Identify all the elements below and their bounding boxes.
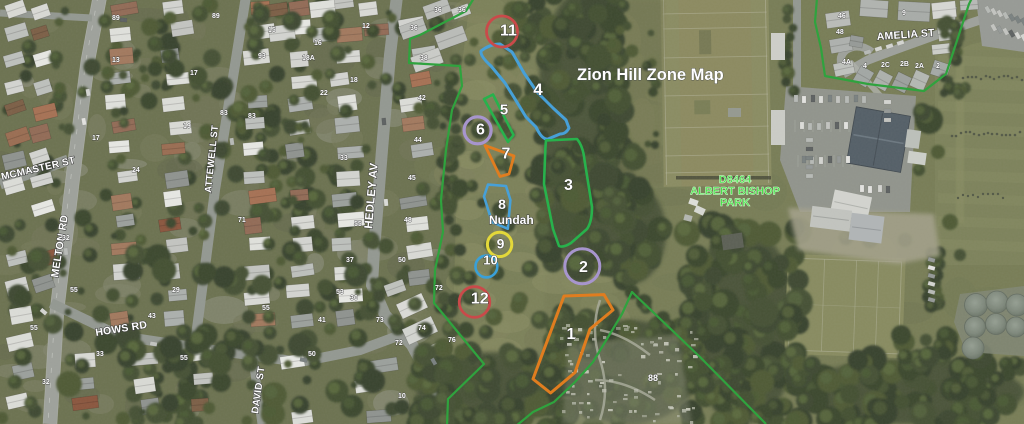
svg-text:45: 45 — [408, 175, 416, 182]
svg-text:9: 9 — [902, 10, 906, 17]
svg-text:72: 72 — [435, 285, 443, 292]
svg-text:9: 9 — [497, 236, 505, 252]
svg-text:83: 83 — [220, 110, 228, 117]
svg-text:55: 55 — [30, 325, 38, 332]
svg-text:8: 8 — [498, 196, 506, 212]
svg-text:55: 55 — [70, 287, 78, 294]
svg-text:71: 71 — [238, 217, 246, 224]
svg-text:89: 89 — [212, 13, 220, 20]
svg-text:36: 36 — [458, 7, 466, 14]
svg-text:72: 72 — [395, 340, 403, 347]
svg-text:Nundah: Nundah — [489, 213, 534, 227]
svg-text:PARK: PARK — [720, 197, 750, 209]
svg-text:55: 55 — [180, 355, 188, 362]
svg-text:48: 48 — [836, 29, 844, 36]
svg-text:88: 88 — [648, 373, 658, 383]
svg-text:2: 2 — [936, 63, 940, 70]
svg-text:46: 46 — [838, 13, 846, 20]
svg-text:17: 17 — [92, 135, 100, 142]
svg-text:10: 10 — [483, 253, 497, 268]
svg-text:1: 1 — [567, 326, 576, 343]
svg-text:29: 29 — [172, 287, 180, 294]
svg-text:4: 4 — [533, 80, 543, 99]
svg-text:7: 7 — [502, 146, 511, 163]
svg-text:18: 18 — [350, 77, 358, 84]
svg-text:38: 38 — [420, 55, 428, 62]
svg-text:50: 50 — [398, 257, 406, 264]
svg-text:74: 74 — [418, 325, 426, 332]
svg-text:15: 15 — [268, 27, 276, 34]
svg-text:55: 55 — [262, 305, 270, 312]
svg-text:11: 11 — [500, 23, 517, 40]
svg-text:24: 24 — [132, 167, 140, 174]
svg-text:4A: 4A — [842, 59, 851, 66]
svg-text:3: 3 — [564, 177, 573, 194]
svg-text:48: 48 — [404, 217, 412, 224]
svg-text:2C: 2C — [881, 62, 890, 69]
svg-text:10: 10 — [398, 393, 406, 400]
svg-text:37: 37 — [346, 257, 354, 264]
svg-text:36: 36 — [410, 25, 418, 32]
svg-text:12: 12 — [362, 23, 370, 30]
svg-text:18A: 18A — [302, 55, 315, 62]
svg-text:17: 17 — [190, 70, 198, 77]
svg-text:2: 2 — [579, 259, 588, 276]
svg-text:33: 33 — [340, 155, 348, 162]
svg-text:5: 5 — [500, 102, 508, 119]
svg-text:32: 32 — [42, 379, 50, 386]
svg-text:43: 43 — [148, 313, 156, 320]
svg-text:2B: 2B — [900, 61, 909, 68]
svg-text:83: 83 — [248, 113, 256, 120]
svg-text:6: 6 — [476, 122, 485, 139]
svg-text:12: 12 — [471, 291, 489, 308]
svg-text:89: 89 — [112, 15, 120, 22]
svg-text:76: 76 — [448, 337, 456, 344]
svg-text:30: 30 — [350, 295, 358, 302]
svg-text:33: 33 — [96, 351, 104, 358]
svg-text:22: 22 — [320, 90, 328, 97]
svg-text:44: 44 — [414, 137, 422, 144]
svg-text:4: 4 — [863, 63, 867, 70]
svg-text:13: 13 — [112, 57, 120, 64]
svg-text:2A: 2A — [915, 63, 924, 70]
svg-text:32: 32 — [62, 235, 70, 242]
svg-text:42: 42 — [418, 95, 426, 102]
svg-text:55: 55 — [354, 221, 362, 228]
svg-text:16: 16 — [314, 40, 322, 47]
svg-text:19: 19 — [183, 123, 191, 130]
svg-text:73: 73 — [376, 317, 384, 324]
svg-text:D8464: D8464 — [719, 174, 752, 186]
svg-text:Zion Hill Zone Map: Zion Hill Zone Map — [577, 66, 724, 84]
svg-text:50: 50 — [308, 351, 316, 358]
svg-text:36: 36 — [434, 7, 442, 14]
svg-text:41: 41 — [318, 317, 326, 324]
svg-text:93: 93 — [258, 53, 266, 60]
svg-text:ALBERT BISHOP: ALBERT BISHOP — [690, 186, 780, 198]
svg-text:53: 53 — [336, 289, 344, 296]
